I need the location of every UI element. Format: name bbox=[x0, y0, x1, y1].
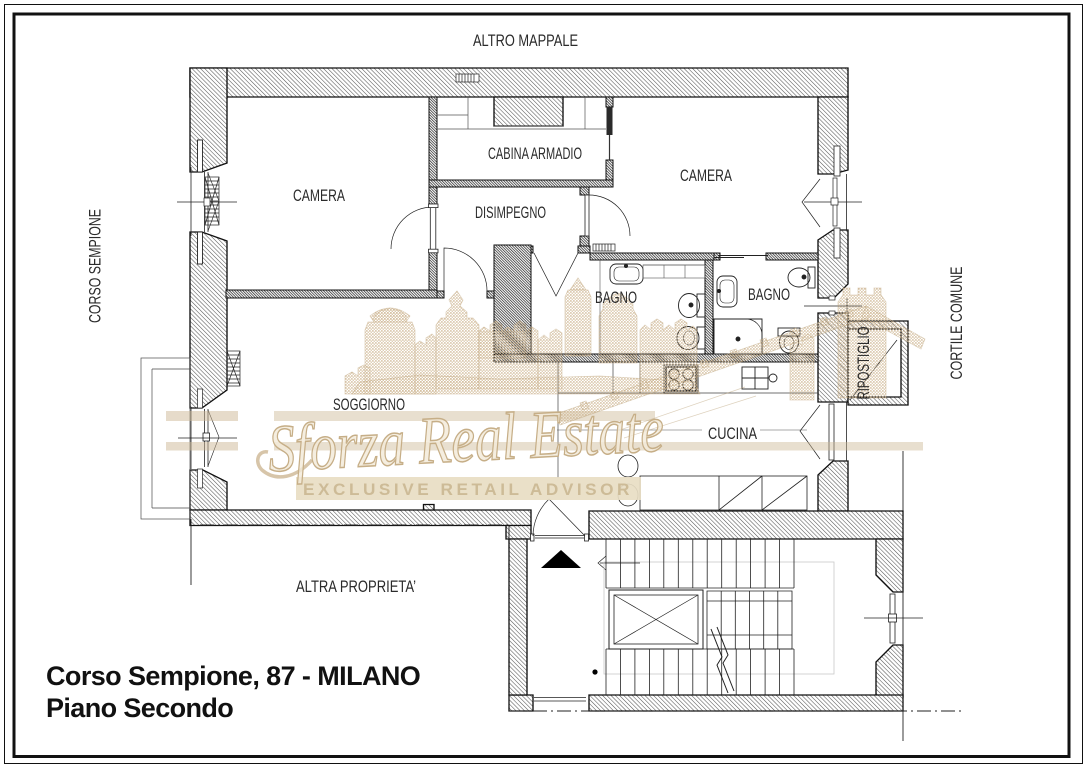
svg-text:CORSO SEMPIONE: CORSO SEMPIONE bbox=[87, 209, 105, 323]
svg-text:RIPOSTIGLIO: RIPOSTIGLIO bbox=[855, 326, 873, 399]
svg-text:DISIMPEGNO: DISIMPEGNO bbox=[475, 204, 546, 222]
svg-text:EXCLUSIVE RETAIL ADVISOR: EXCLUSIVE RETAIL ADVISOR bbox=[303, 481, 633, 499]
svg-text:BAGNO: BAGNO bbox=[595, 289, 637, 307]
svg-text:Piano Secondo: Piano Secondo bbox=[46, 693, 234, 723]
svg-text:CAMERA: CAMERA bbox=[680, 167, 732, 185]
svg-text:CUCINA: CUCINA bbox=[708, 425, 757, 443]
svg-text:CAMERA: CAMERA bbox=[293, 187, 345, 205]
svg-text:SOGGIORNO: SOGGIORNO bbox=[333, 396, 405, 414]
svg-text:CABINA ARMADIO: CABINA ARMADIO bbox=[488, 145, 582, 163]
svg-text:CORTILE COMUNE: CORTILE COMUNE bbox=[948, 267, 966, 380]
svg-text:BAGNO: BAGNO bbox=[748, 286, 790, 304]
svg-text:ALTRA PROPRIETA’: ALTRA PROPRIETA’ bbox=[296, 578, 416, 596]
svg-text:Corso Sempione, 87 - MILANO: Corso Sempione, 87 - MILANO bbox=[46, 661, 421, 691]
svg-text:ALTRO MAPPALE: ALTRO MAPPALE bbox=[473, 32, 578, 50]
